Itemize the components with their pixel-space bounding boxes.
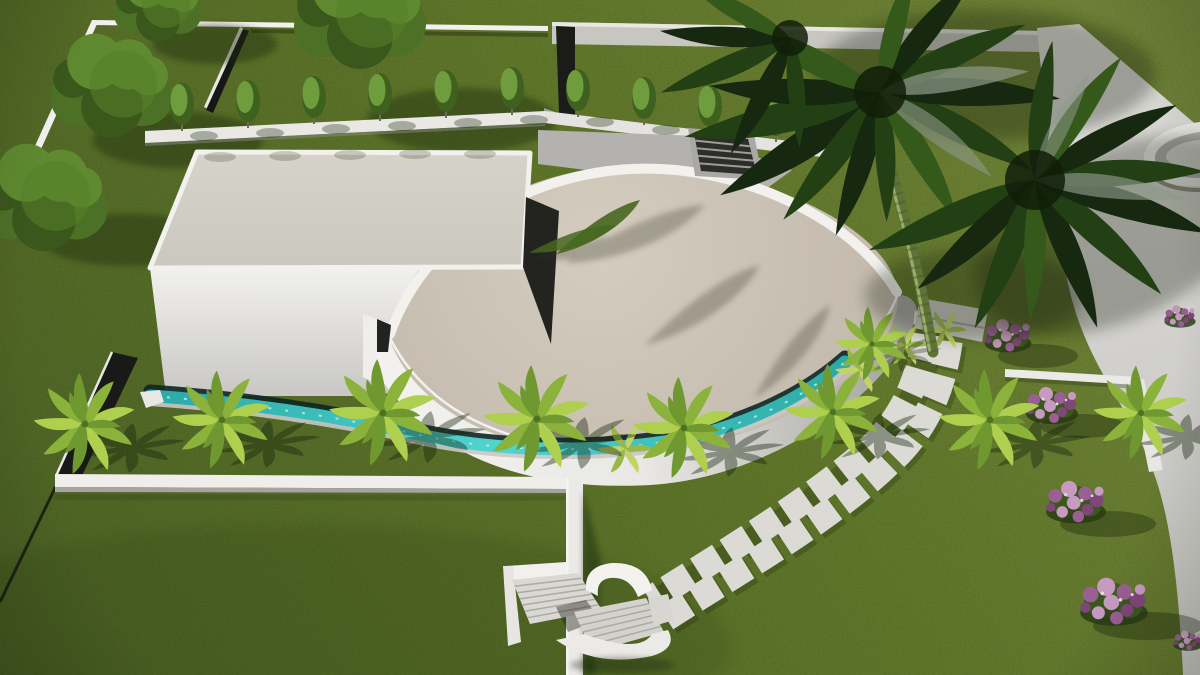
- site-plan-render: [0, 0, 1200, 675]
- vignette: [0, 0, 1200, 675]
- render-viewport: [0, 0, 1200, 675]
